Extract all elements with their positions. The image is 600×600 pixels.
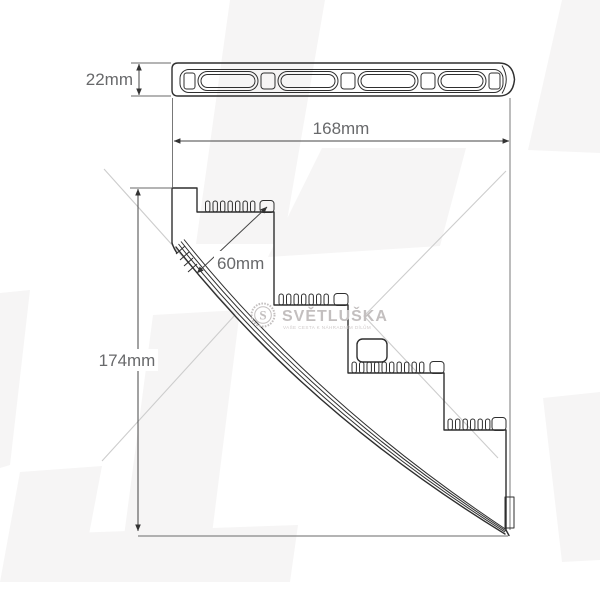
dimension-22mm: 22mm: [86, 64, 139, 95]
connector-box: [357, 339, 387, 362]
watermark-brand: SVĚTLUŠKA: [282, 306, 388, 325]
technical-drawing-canvas: 22mm 168mm 174mm 60mm S SVĚTLUŠKA VAŠE C…: [0, 0, 600, 600]
watermark-logo: S SVĚTLUŠKA VAŠE CESTA K NÁHRADNÍM DÍLŮM: [252, 304, 388, 331]
fin-row-2: [279, 294, 348, 306]
watermark-initial: S: [259, 308, 266, 323]
fin-row-3: [352, 339, 444, 374]
dimension-label-front-width: 168mm: [313, 119, 370, 138]
fin-row-4: [448, 418, 506, 431]
product-technical-drawing: 22mm 168mm 174mm 60mm S SVĚTLUŠKA VAŠE C…: [0, 0, 600, 600]
dimension-label-lens-diagonal: 60mm: [217, 254, 264, 273]
dimension-label-front-height: 22mm: [86, 70, 133, 89]
watermark-tagline: VAŠE CESTA K NÁHRADNÍM DÍLŮM: [283, 324, 371, 330]
dimension-label-side-height: 174mm: [99, 351, 156, 370]
